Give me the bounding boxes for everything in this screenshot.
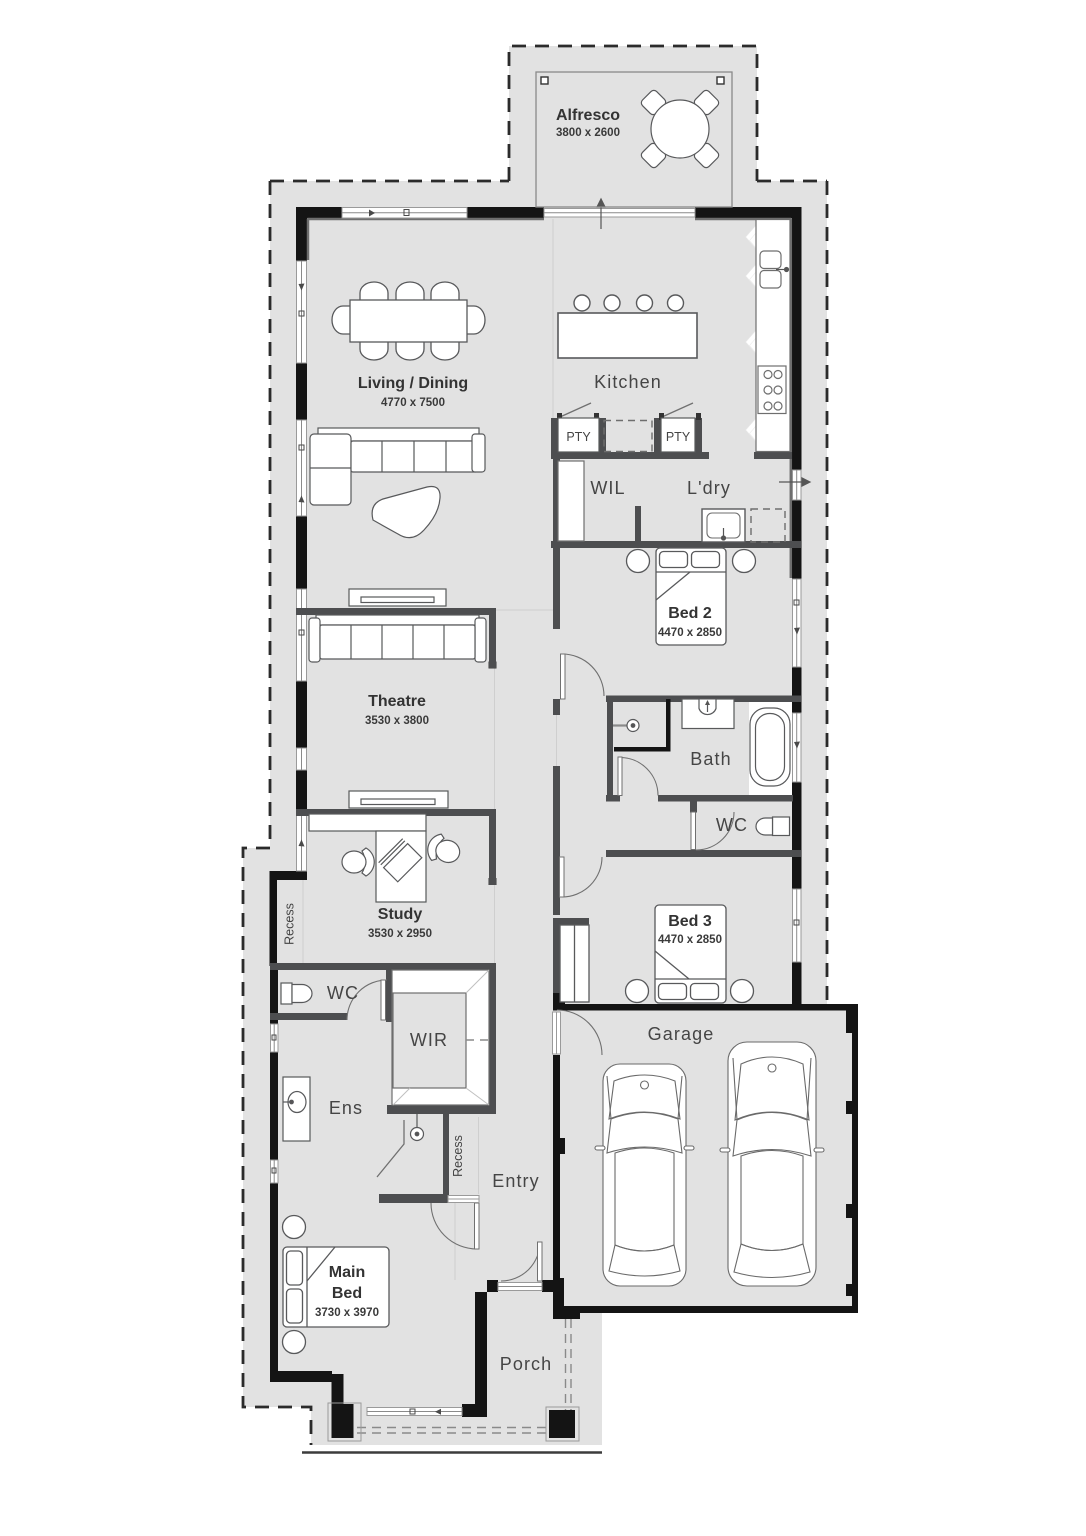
svg-text:WIL: WIL xyxy=(590,478,625,498)
svg-text:L'dry: L'dry xyxy=(687,478,731,498)
svg-text:Ens: Ens xyxy=(329,1098,363,1118)
svg-text:3730 x 3970: 3730 x 3970 xyxy=(315,1307,379,1319)
svg-text:Bed 3: Bed 3 xyxy=(668,913,712,930)
svg-text:3530 x 3800: 3530 x 3800 xyxy=(365,715,429,727)
svg-text:Recess: Recess xyxy=(283,903,297,945)
svg-text:Bed: Bed xyxy=(332,1285,362,1302)
svg-text:Porch: Porch xyxy=(500,1354,553,1374)
svg-text:Bed 2: Bed 2 xyxy=(668,605,712,622)
svg-text:3800 x 2600: 3800 x 2600 xyxy=(556,127,620,139)
svg-text:Theatre: Theatre xyxy=(368,693,426,710)
svg-text:3530 x 2950: 3530 x 2950 xyxy=(368,928,432,940)
svg-text:Bath: Bath xyxy=(690,749,731,769)
svg-text:Living / Dining: Living / Dining xyxy=(358,375,468,392)
svg-text:4770 x 7500: 4770 x 7500 xyxy=(381,397,445,409)
svg-text:Entry: Entry xyxy=(492,1171,540,1191)
svg-text:Kitchen: Kitchen xyxy=(594,372,662,392)
svg-text:WIR: WIR xyxy=(410,1030,448,1050)
svg-text:WC: WC xyxy=(716,815,748,835)
svg-text:Recess: Recess xyxy=(451,1135,465,1177)
svg-text:4470 x 2850: 4470 x 2850 xyxy=(658,627,722,639)
svg-text:Garage: Garage xyxy=(648,1024,715,1044)
svg-text:4470 x 2850: 4470 x 2850 xyxy=(658,934,722,946)
svg-text:Alfresco: Alfresco xyxy=(556,107,620,124)
svg-text:PTY: PTY xyxy=(666,430,691,444)
svg-text:Main: Main xyxy=(329,1264,365,1281)
svg-text:Study: Study xyxy=(378,906,423,923)
svg-text:PTY: PTY xyxy=(566,430,591,444)
svg-text:WC: WC xyxy=(327,983,359,1003)
